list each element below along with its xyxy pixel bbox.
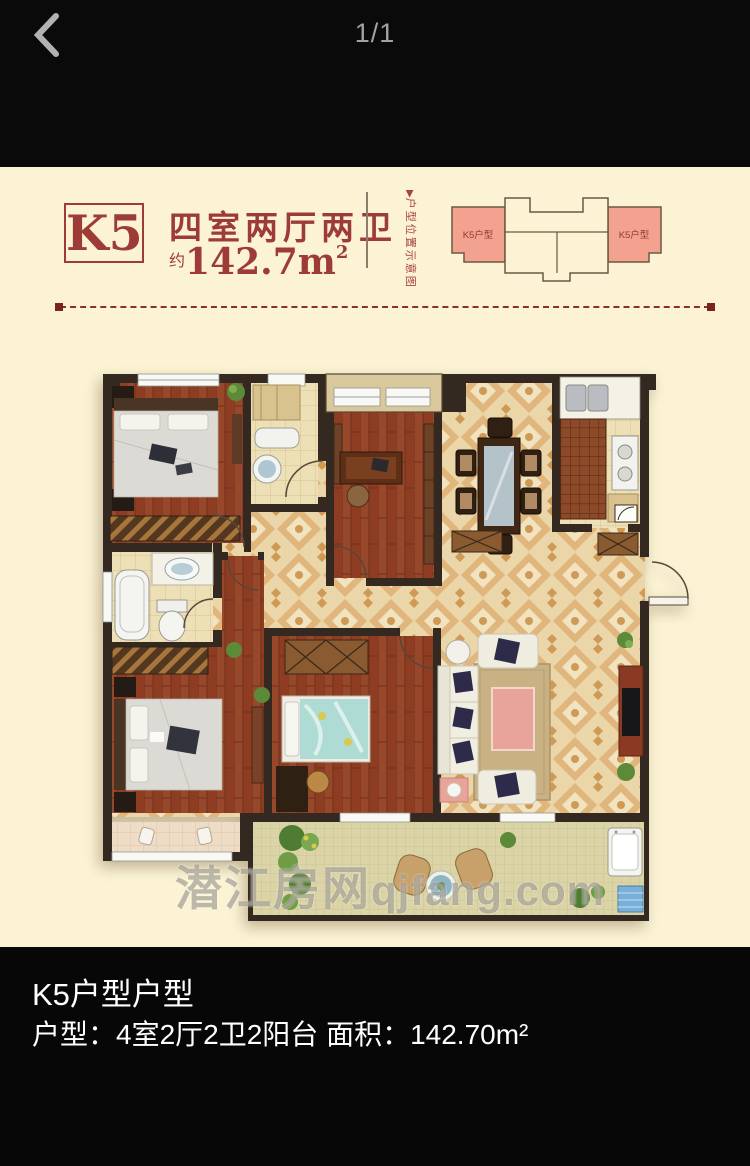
area-value: 142.7m (185, 241, 336, 283)
caption-bar: K5户型户型 户型：4室2厅2卫2阳台 面积：142.70m² (0, 947, 750, 1166)
area-prefix: 约 (169, 251, 185, 270)
right-wing-label: K5户型 (619, 229, 650, 241)
vertical-divider (366, 192, 368, 268)
divider-end-left (55, 303, 63, 311)
floor-plan-image[interactable] (95, 360, 713, 925)
caption-subtitle: 户型：4室2厅2卫2阳台 面积：142.70m² (32, 1013, 528, 1053)
entrance-door (649, 562, 688, 605)
dashed-divider (60, 306, 710, 308)
triangle-icon: ▶ (404, 190, 415, 198)
caption-title: K5户型户型 (32, 969, 194, 1014)
divider-end-right (707, 303, 715, 311)
building-position-diagram: K5户型 K5户型 (440, 192, 690, 290)
area-superscript: 2 (336, 242, 349, 263)
unit-code-badge: K5 (64, 203, 144, 263)
watermark: 潜江房网qjfang.com (170, 850, 610, 919)
header-bar: 1/1 (0, 0, 750, 167)
app-screen: 1/1 K5 四室两厅两卫 约142.7m2 ▶户型位置示意图 K5户型 K5户… (0, 0, 750, 1166)
left-wing-label: K5户型 (463, 229, 494, 241)
bay-window-floor (112, 822, 240, 852)
location-hint-label: ▶户型位置示意图 (399, 190, 419, 289)
watermark-cjk: 潜江房网 (175, 862, 371, 915)
watermark-latin: qjfang.com (371, 867, 605, 914)
area-text: 约142.7m2 (169, 241, 348, 283)
page-indicator: 1/1 (0, 18, 750, 49)
location-hint-text: 户型位置示意图 (404, 198, 416, 289)
